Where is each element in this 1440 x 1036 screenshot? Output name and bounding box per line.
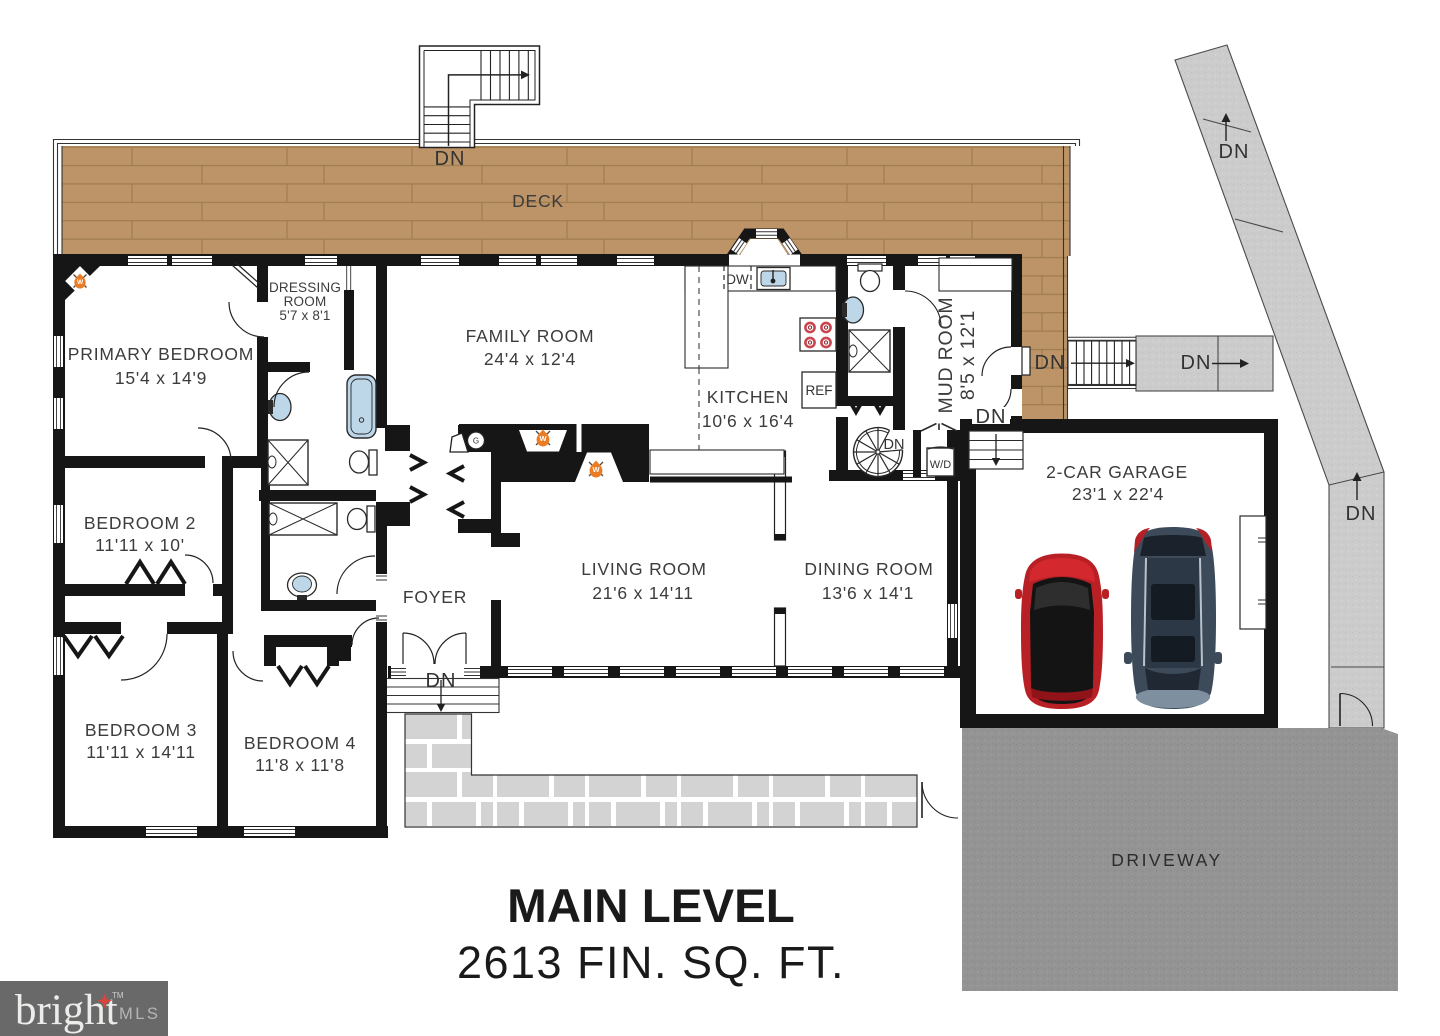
svg-text:DRESSING: DRESSING — [269, 280, 341, 295]
svg-text:PRIMARY BEDROOM: PRIMARY BEDROOM — [68, 344, 254, 364]
svg-text:LIVING ROOM: LIVING ROOM — [581, 559, 706, 579]
svg-text:DN: DN — [1035, 352, 1066, 374]
svg-text:DECK: DECK — [512, 191, 564, 211]
svg-text:DN: DN — [1219, 141, 1250, 163]
svg-text:DN: DN — [426, 670, 457, 692]
svg-text:23'1 x 22'4: 23'1 x 22'4 — [1072, 484, 1164, 504]
svg-text:BEDROOM 4: BEDROOM 4 — [244, 733, 356, 753]
svg-text:FAMILY ROOM: FAMILY ROOM — [466, 326, 595, 346]
svg-text:8'5 x 12'1: 8'5 x 12'1 — [957, 310, 979, 400]
svg-text:ROOM: ROOM — [284, 294, 327, 309]
svg-text:21'6 x 14'11: 21'6 x 14'11 — [592, 583, 694, 603]
svg-text:DN: DN — [435, 148, 466, 170]
svg-text:BEDROOM 3: BEDROOM 3 — [85, 720, 197, 740]
svg-text:MAIN LEVEL: MAIN LEVEL — [507, 880, 795, 933]
svg-text:15'4 x 14'9: 15'4 x 14'9 — [115, 368, 207, 388]
svg-text:W: W — [539, 434, 547, 443]
svg-text:REF: REF — [806, 383, 833, 398]
svg-text:DN: DN — [1181, 352, 1212, 374]
svg-text:KITCHEN: KITCHEN — [707, 387, 789, 407]
svg-text:DINING ROOM: DINING ROOM — [804, 559, 933, 579]
svg-text:DN: DN — [884, 437, 905, 453]
svg-text:DN: DN — [1346, 503, 1377, 525]
svg-text:11'11 x 10': 11'11 x 10' — [95, 535, 185, 555]
svg-text:TM: TM — [112, 991, 124, 1000]
svg-text:W: W — [592, 465, 600, 474]
svg-text:MUD ROOM: MUD ROOM — [935, 297, 957, 414]
svg-text:DW: DW — [726, 272, 749, 287]
svg-text:5'7 x 8'1: 5'7 x 8'1 — [279, 308, 330, 323]
svg-text:11'11 x 14'11: 11'11 x 14'11 — [86, 742, 196, 762]
svg-text:2-CAR GARAGE: 2-CAR GARAGE — [1046, 462, 1188, 482]
svg-text:11'8 x 11'8: 11'8 x 11'8 — [255, 755, 345, 775]
svg-text:G: G — [473, 437, 479, 446]
svg-text:13'6 x 14'1: 13'6 x 14'1 — [822, 583, 914, 603]
svg-text:DN: DN — [976, 406, 1007, 428]
svg-text:W: W — [77, 279, 84, 286]
svg-text:bright: bright — [15, 987, 118, 1034]
svg-text:FOYER: FOYER — [403, 587, 467, 607]
svg-text:10'6 x 16'4: 10'6 x 16'4 — [702, 411, 794, 431]
svg-text:MLS: MLS — [119, 1005, 160, 1023]
svg-text:24'4 x 12'4: 24'4 x 12'4 — [484, 349, 576, 369]
svg-text:DRIVEWAY: DRIVEWAY — [1111, 850, 1222, 870]
svg-text:2613 FIN. SQ. FT.: 2613 FIN. SQ. FT. — [457, 937, 845, 988]
svg-text:W/D: W/D — [930, 459, 951, 471]
svg-text:BEDROOM 2: BEDROOM 2 — [84, 513, 196, 533]
